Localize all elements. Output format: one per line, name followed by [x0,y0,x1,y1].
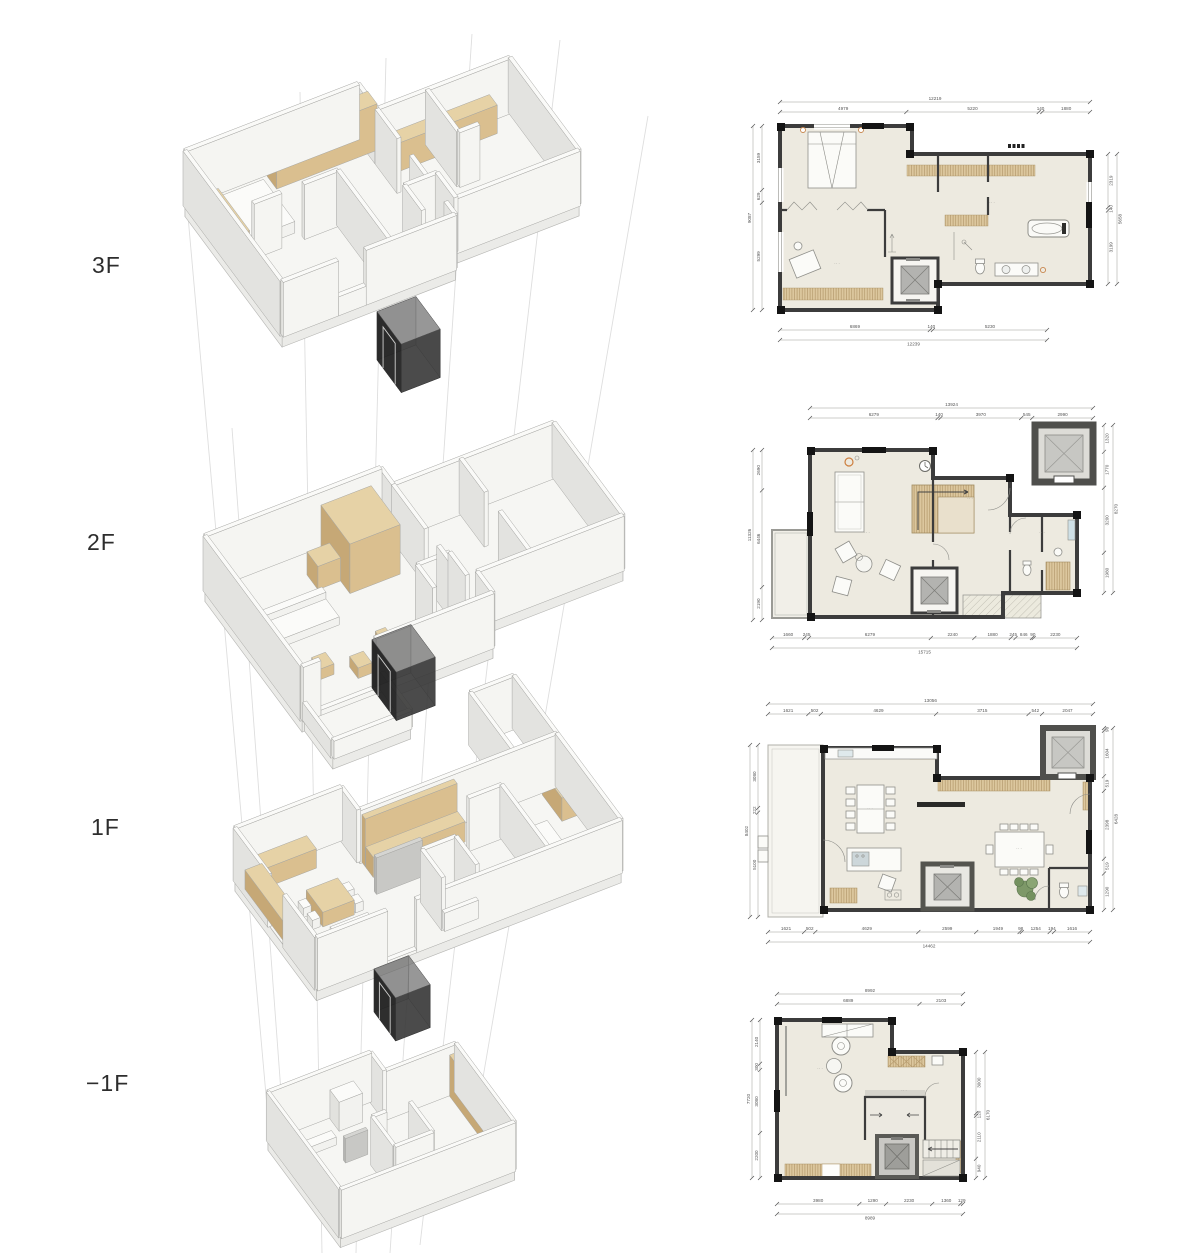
svg-text:1880: 1880 [1061,106,1072,111]
wardrobe [822,1024,873,1037]
floorplan-minus1f: ·· · ·· · 688921038992398012902230136012… [742,980,1054,1228]
svg-text:846: 846 [1020,632,1028,637]
svg-text:129: 129 [958,1198,966,1203]
stairs [923,1140,960,1176]
elevator-shaft-detail [1035,425,1093,483]
svg-text:3080: 3080 [754,1096,759,1107]
iso-floor-1f [233,673,623,1000]
svg-text:245: 245 [1009,632,1017,637]
svg-text:8270: 8270 [1114,503,1119,514]
svg-text:519: 519 [1105,862,1110,870]
svg-text:140: 140 [1037,106,1045,111]
svg-text:8989: 8989 [865,1215,876,1220]
svg-text:4629: 4629 [873,708,884,713]
svg-text:519: 519 [1105,779,1110,787]
room-label: ·· · [1039,530,1045,535]
svg-text:15715: 15715 [918,649,931,654]
svg-text:1604: 1604 [1105,748,1110,759]
svg-text:300: 300 [754,1063,759,1071]
svg-text:5220: 5220 [967,106,978,111]
svg-text:5658: 5658 [1118,213,1123,224]
svg-text:2230: 2230 [1050,632,1061,637]
bathtub [1028,220,1069,237]
svg-text:8992: 8992 [865,988,876,993]
svg-text:12239: 12239 [907,341,920,346]
svg-text:194: 194 [1048,926,1056,931]
svg-text:222: 222 [752,806,757,814]
svg-text:3970: 3970 [976,412,987,417]
svg-text:5299: 5299 [756,251,761,262]
inner-room-floor [867,1099,923,1138]
elevator-shaft-cube [374,956,430,1041]
svg-text:11326: 11326 [747,528,752,541]
svg-text:8402: 8402 [744,825,749,836]
svg-text:2690: 2690 [756,465,761,476]
svg-text:6889: 6889 [843,998,854,1003]
svg-text:1320: 1320 [1105,433,1110,444]
svg-text:1616: 1616 [1067,926,1078,931]
svg-text:6170: 6170 [986,1109,991,1120]
svg-text:2200: 2200 [754,1150,759,1161]
elevator [877,1136,917,1177]
room-label: ·· · [867,806,873,811]
svg-text:629: 629 [756,192,761,200]
iso-floor-3f [183,55,581,347]
vanity-double-sink [995,263,1046,276]
svg-text:2599: 2599 [942,926,953,931]
svg-text:545: 545 [1023,412,1031,417]
svg-text:140: 140 [1109,205,1114,213]
small-box [932,1056,943,1065]
svg-text:542: 542 [1031,708,1039,713]
svg-text:13924: 13924 [945,402,958,407]
svg-text:98: 98 [1018,926,1024,931]
svg-text:90: 90 [1030,632,1036,637]
entry-porch [758,745,823,917]
room-label: ·· · [817,1066,823,1071]
elevator [923,864,972,909]
toilet [976,259,985,274]
svg-text:2990: 2990 [1057,412,1068,417]
room-label: ·· · [1016,846,1022,851]
elevator-shaft-detail [1043,728,1093,779]
room-label: ·· · [989,200,995,205]
svg-text:6279: 6279 [869,412,880,417]
bed [801,128,864,189]
svg-text:3159: 3159 [756,152,761,163]
svg-text:1880: 1880 [987,632,998,637]
svg-text:940: 940 [977,1164,982,1172]
stairs [912,485,974,533]
svg-text:140: 140 [935,412,943,417]
svg-text:6279: 6279 [865,632,876,637]
room-label: ·· · [901,1088,907,1093]
svg-text:13056: 13056 [924,698,937,703]
svg-text:2230: 2230 [904,1198,915,1203]
svg-text:120: 120 [977,1110,982,1118]
exploded-floorplan-diagram: 3F 2F 1F −1F [0,0,1200,1253]
balcony [772,530,810,618]
svg-text:1660: 1660 [783,632,794,637]
svg-text:2110: 2110 [977,1132,982,1142]
svg-text:245: 245 [803,632,811,637]
room-label: ·· · [864,530,870,535]
svg-text:3000: 3000 [977,1077,982,1088]
svg-text:5230: 5230 [985,324,996,329]
wardrobe-cabinet [907,165,1035,176]
svg-text:14462: 14462 [923,943,936,948]
svg-text:2047: 2047 [1062,708,1073,713]
low-cabinet [830,888,857,903]
svg-text:2240: 2240 [947,632,958,637]
svg-text:1980: 1980 [1105,567,1110,578]
elevator-shaft-cube [377,296,440,392]
media-wall [917,802,965,807]
svg-text:3199: 3199 [1109,242,1114,253]
svg-text:502: 502 [806,926,814,931]
exploded-axonometric-view [0,0,740,1253]
elevator [912,568,957,613]
svg-text:3080: 3080 [752,771,757,782]
svg-text:502: 502 [811,708,819,713]
svg-text:1770: 1770 [1105,464,1110,475]
svg-text:6428: 6428 [1114,813,1119,824]
vent-grille [1008,144,1025,148]
closet-cabinet [945,215,988,226]
svg-text:140: 140 [928,324,936,329]
svg-text:1621: 1621 [781,926,792,931]
iso-floor-2f [203,420,625,769]
svg-text:2190: 2190 [756,598,761,609]
svg-text:12219: 12219 [929,96,942,101]
svg-text:9087: 9087 [747,212,752,223]
svg-text:1621: 1621 [783,708,794,713]
svg-text:7720: 7720 [746,1093,751,1104]
svg-text:1290: 1290 [1105,886,1110,897]
elevator [892,258,938,303]
svg-text:3980: 3980 [813,1198,824,1203]
svg-text:3200: 3200 [1105,515,1110,526]
svg-text:4979: 4979 [838,106,849,111]
room-label: ·· · [967,496,973,501]
room-label: ·· · [834,261,840,266]
svg-text:3715: 3715 [977,708,988,713]
svg-text:6446: 6446 [756,533,761,544]
svg-text:2398: 2398 [1105,819,1110,830]
wall-clock [920,461,931,472]
floorplan-1f: ·· · ·· · 162150246293715542204713056162… [742,690,1142,972]
svg-text:1360: 1360 [941,1198,952,1203]
svg-text:98: 98 [1105,726,1110,732]
svg-text:1254: 1254 [1031,926,1042,931]
cabinet-gap [822,1164,840,1177]
svg-text:4629: 4629 [862,926,873,931]
svg-text:2103: 2103 [936,998,947,1003]
svg-text:6869: 6869 [850,324,861,329]
floorplan-2f: ·· · ·· · ·· · 6279140397054529901392416… [742,392,1142,672]
low-cabinet [783,288,883,300]
sofa [835,472,864,532]
svg-text:2140: 2140 [754,1036,759,1047]
svg-text:1290: 1290 [868,1198,879,1203]
svg-text:5100: 5100 [752,859,757,870]
svg-text:1949: 1949 [993,926,1004,931]
iso-floor-minus1f [266,1041,516,1247]
svg-text:2319: 2319 [1109,175,1114,186]
floorplan-3f: ·· · ·· · 497952201401880122196869140523… [742,82,1142,370]
